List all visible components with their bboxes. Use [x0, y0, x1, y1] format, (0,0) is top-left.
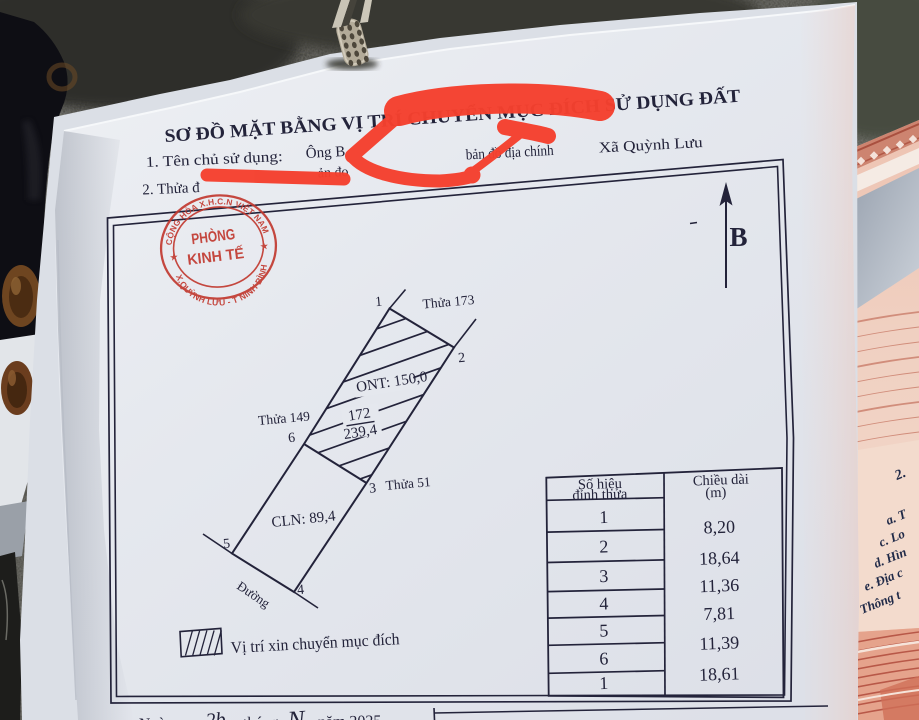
svg-text:7,81: 7,81 — [703, 603, 735, 624]
svg-text:5: 5 — [223, 537, 231, 553]
svg-text:6: 6 — [599, 648, 609, 668]
svg-text:1: 1 — [375, 295, 383, 311]
svg-text:3: 3 — [599, 566, 609, 586]
svg-text:2b: 2b — [205, 709, 226, 720]
svg-text:11,36: 11,36 — [699, 575, 740, 596]
svg-text:đỉnh thửa: đỉnh thửa — [572, 486, 628, 503]
svg-text:★: ★ — [169, 252, 179, 264]
svg-text:18,64: 18,64 — [699, 547, 740, 568]
svg-text:1: 1 — [599, 507, 609, 527]
svg-text:năm 2025: năm 2025 — [318, 713, 382, 720]
svg-text:8,20: 8,20 — [703, 516, 735, 537]
svg-text:B: B — [730, 222, 748, 252]
svg-text:2: 2 — [458, 351, 466, 367]
svg-text:4: 4 — [599, 593, 609, 613]
svg-text:18,61: 18,61 — [699, 663, 740, 684]
svg-text:3: 3 — [369, 481, 377, 497]
svg-text:6: 6 — [288, 431, 296, 447]
svg-text:4: 4 — [297, 583, 305, 599]
svg-text:2: 2 — [599, 536, 609, 556]
svg-text:★: ★ — [259, 241, 269, 253]
svg-text:5: 5 — [599, 620, 609, 640]
svg-text:2. Thửa đ: 2. Thửa đ — [142, 180, 201, 199]
svg-text:(m): (m) — [705, 485, 727, 502]
svg-text:Ngày: Ngày — [139, 715, 174, 720]
svg-text:11,39: 11,39 — [699, 632, 740, 653]
svg-text:1: 1 — [599, 673, 609, 693]
svg-text:tháng: tháng — [243, 714, 279, 720]
svg-text:Ông B: Ông B — [305, 143, 345, 162]
